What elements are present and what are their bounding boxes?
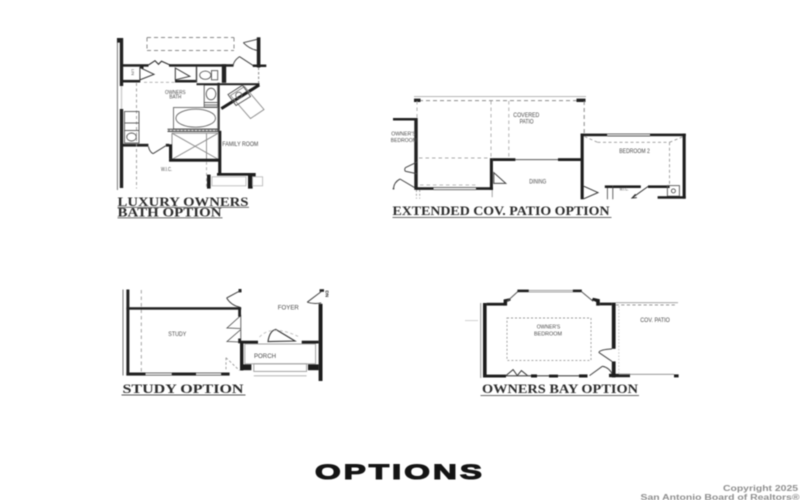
svg-text:COV. PATIO: COV. PATIO <box>640 318 670 324</box>
svg-text:OWNERS BAY OPTION: OWNERS BAY OPTION <box>482 382 638 396</box>
svg-text:San Antonio Board of Realtors®: San Antonio Board of Realtors® <box>641 493 800 500</box>
svg-text:COVERED: COVERED <box>513 113 540 119</box>
svg-text:FAMILY ROOM: FAMILY ROOM <box>222 141 258 148</box>
svg-text:DINING: DINING <box>529 180 546 186</box>
svg-text:OWNER'S: OWNER'S <box>537 324 561 330</box>
svg-text:Copyright 2025: Copyright 2025 <box>723 483 798 493</box>
svg-text:BEDROOM: BEDROOM <box>391 138 417 144</box>
svg-text:STUDY: STUDY <box>168 331 186 338</box>
svg-text:OWNER'S: OWNER'S <box>391 132 416 138</box>
svg-text:OPTIONS: OPTIONS <box>315 460 485 484</box>
svg-text:EXTENDED COV. PATIO OPTION: EXTENDED COV. PATIO OPTION <box>393 204 610 218</box>
svg-text:PORCH: PORCH <box>254 353 276 360</box>
svg-text:W.I.C.: W.I.C. <box>620 187 629 192</box>
svg-text:BEDROOM 2: BEDROOM 2 <box>619 148 650 155</box>
svg-text:PATIO: PATIO <box>520 119 534 125</box>
svg-text:BATH OPTION: BATH OPTION <box>118 205 222 219</box>
svg-text:BEDROOM: BEDROOM <box>534 331 562 337</box>
svg-text:W.I.C.: W.I.C. <box>161 167 172 173</box>
svg-text:DN: DN <box>325 291 330 298</box>
svg-text:BATH: BATH <box>169 95 181 101</box>
svg-text:FOYER: FOYER <box>278 305 300 312</box>
svg-text:LIN: LIN <box>131 69 136 75</box>
svg-text:STUDY OPTION: STUDY OPTION <box>123 382 244 396</box>
